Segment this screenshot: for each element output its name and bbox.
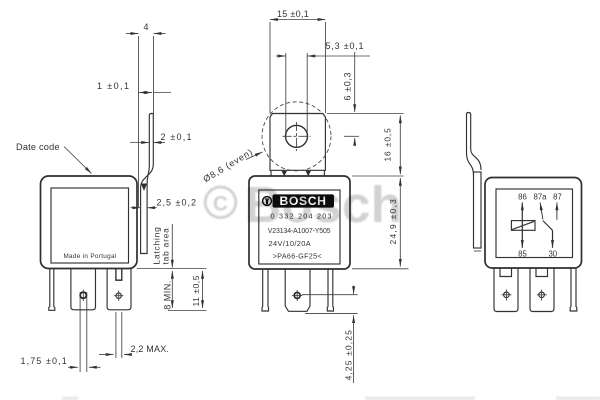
svg-text:15 ±0,1: 15 ±0,1 [277, 9, 309, 19]
svg-text:2,2 MAX.: 2,2 MAX. [131, 344, 170, 354]
svg-text:6 ±0,3: 6 ±0,3 [343, 72, 353, 101]
svg-text:87a: 87a [533, 193, 547, 202]
svg-text:4: 4 [143, 22, 148, 32]
svg-text:4,25 ±0,25: 4,25 ±0,25 [344, 329, 354, 381]
svg-text:tab area: tab area [161, 227, 171, 264]
svg-text:C: C [213, 192, 228, 215]
svg-text:Bosch: Bosch [245, 176, 403, 233]
svg-text:85: 85 [518, 250, 527, 259]
svg-text:2,5 ±0,2: 2,5 ±0,2 [157, 198, 197, 208]
svg-text:87: 87 [553, 193, 562, 202]
svg-text:2 ±0,1: 2 ±0,1 [161, 132, 193, 142]
svg-text:Made in Portugal: Made in Portugal [63, 253, 116, 260]
svg-text:24V/10/20A: 24V/10/20A [269, 239, 312, 248]
svg-text:1,75 ±0,1: 1,75 ±0,1 [21, 356, 68, 366]
svg-text:11 ±0,5: 11 ±0,5 [191, 275, 201, 306]
svg-text:8 MIN.: 8 MIN. [162, 280, 172, 310]
svg-text:30: 30 [548, 250, 557, 259]
svg-text:5,3 ±0,1: 5,3 ±0,1 [326, 41, 365, 51]
svg-text:1 ±0,1: 1 ±0,1 [97, 81, 130, 91]
svg-text:>PA66-GF25<: >PA66-GF25< [273, 253, 322, 261]
svg-text:Date code: Date code [16, 142, 60, 152]
svg-text:16 ±0,5: 16 ±0,5 [383, 127, 393, 161]
svg-text:86: 86 [518, 193, 527, 202]
